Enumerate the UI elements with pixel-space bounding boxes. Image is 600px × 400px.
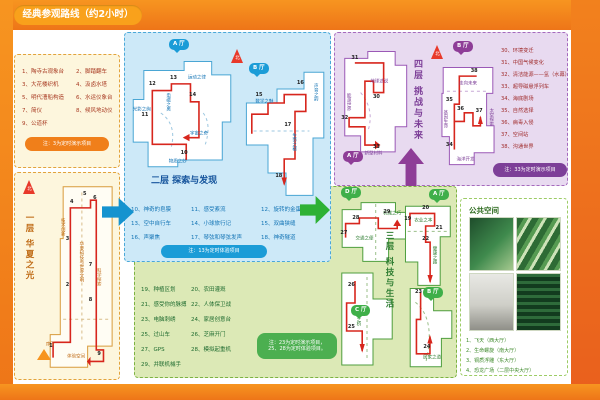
north-compass-floor2: 北	[231, 49, 244, 64]
legend-item: 15、双曲狭缝	[261, 219, 341, 227]
north-compass-floor4: 北	[431, 45, 444, 60]
zone-label: 物质之妙	[169, 161, 187, 166]
route-point-10: 10	[181, 150, 188, 156]
floor4-note-text: 注：33为定时演示项目	[493, 167, 567, 174]
floor3-note: 注：23为定时演示项目， 25、28为定时体验项目。	[257, 333, 337, 359]
legend-item: 9、公道杯	[22, 119, 74, 127]
legend-item: 34、海底剧场	[501, 95, 569, 102]
zone-label: 海洋开发	[457, 159, 475, 164]
legend-item: 33、超导磁悬浮列车	[501, 83, 569, 90]
legend-item: 13、空中自行车	[131, 219, 187, 227]
floor3-legend: 19、种植区划20、农田灌溉21、感受你的脉搏22、人体保卫战23、电脑刺绣24…	[141, 285, 261, 368]
zone-label: 基因生命	[442, 110, 447, 128]
legend-item: 1、飞天（西大厅）	[466, 337, 509, 344]
legend-item: 10、神奇的皂膜	[131, 205, 187, 213]
zone-label: 电磁之奥	[165, 93, 170, 111]
frame-bottom	[0, 384, 600, 400]
hall-tag-d: D 厅	[341, 187, 361, 198]
zone-label: 走向未来	[459, 82, 477, 87]
floor2-title: 二层 探索与发现	[151, 173, 217, 186]
hall-tag-b: B 厅	[249, 63, 269, 74]
route-point-20: 20	[422, 205, 429, 211]
public-space-photos	[469, 217, 561, 331]
legend-item: 27、GPS	[141, 345, 189, 353]
compass-label: 北	[231, 55, 244, 61]
route-point-17: 17	[284, 122, 291, 128]
hall-tag-a: A 厅	[169, 39, 189, 50]
legend-item: 29、并联机械手	[141, 360, 189, 368]
route-point-2: 2	[66, 282, 69, 288]
route-point-27: 27	[340, 230, 347, 236]
route-point-24: 24	[423, 344, 430, 350]
legend-item: 35、自然选择	[501, 107, 569, 114]
route-point-23: 23	[415, 289, 422, 295]
zone-label: 健康之路	[431, 246, 436, 264]
route-point-28: 28	[352, 215, 359, 221]
photo-flying-apsaras	[469, 217, 514, 271]
route-point-5: 5	[83, 191, 86, 197]
zone-label: 华夏科技与世界文明	[78, 241, 83, 282]
route-point-15: 15	[256, 92, 263, 98]
legend-item: 20、农田灌溉	[191, 285, 261, 293]
floor4-map-hall-b: 走向未来基因生命太空探索海洋开发3835363734	[437, 61, 499, 169]
floor4-panel: 能源世界地球述说新型材料31303233 走向未来基因生命太空探索海洋开发383…	[334, 32, 568, 186]
frame-left	[0, 0, 13, 400]
legend-item: 4、恐龙广场（二层中央大厅）	[466, 367, 534, 374]
route-point-9: 9	[97, 351, 100, 357]
route-point-1: 1	[49, 343, 52, 349]
photo-bronze-relief	[516, 273, 561, 331]
route-point-32: 32	[341, 115, 348, 121]
public-space-captions: 1、飞天（西大厅）2、生命螺旋（南大厅）3、铜质浮雕（东大厅）4、恐龙广场（二层…	[466, 337, 566, 374]
page-title: 经典参观路线（约2小时）	[14, 5, 142, 25]
route-point-38: 38	[471, 68, 478, 74]
floor2-map-hall-a: 光影之绚电磁之奥运动之律宇宙之奇物质之妙1011121314	[129, 57, 235, 169]
hall-tag-b: B 厅	[453, 41, 473, 52]
public-space-panel: 公共空间 1、飞天（西大厅）2、生命螺旋（南大厅）3、铜质浮雕（东大厅）4、恐龙…	[460, 198, 568, 376]
floor1-map-panel: 北 一层 华夏之光 技术创新华夏科技与世界文明科学探索序厅体验空间1234567…	[14, 172, 120, 380]
zone-label: 居家之道	[423, 356, 441, 361]
zone-label: 太空探索	[488, 108, 493, 126]
zone-label: 技术创新	[59, 218, 64, 236]
route-point-3: 3	[66, 236, 69, 242]
legend-item: 31、中国气候变化	[501, 59, 569, 66]
floor3-note-line2: 25、28为定时体验项目。	[257, 346, 337, 353]
legend-item: 3、铜质浮雕（东大厅）	[466, 357, 519, 364]
floor2-map-hall-b: 数学之魅声音之韵生命之秘15161718	[241, 61, 331, 201]
route-point-26: 26	[348, 282, 355, 288]
route-point-33: 33	[373, 144, 380, 150]
floor2-note: 注：13为定时体验项目	[161, 245, 267, 258]
north-compass-floor1: 北	[23, 180, 36, 195]
zone-label: 宇宙之奇	[190, 133, 208, 138]
hall-tag-c: C 厅	[351, 305, 370, 316]
route-point-6: 6	[93, 195, 96, 201]
floor1-title: 一层 华夏之光	[23, 213, 35, 343]
route-point-25: 25	[348, 324, 355, 330]
legend-item: 2、生命螺旋（南大厅）	[466, 347, 519, 354]
route-point-19: 19	[404, 216, 411, 222]
legend-item: 37、空间站	[501, 131, 569, 138]
legend-item: 36、病毒入侵	[501, 119, 569, 126]
route-point-16: 16	[297, 80, 304, 86]
legend-item: 32、清洁能源——氢（水幕）	[501, 71, 569, 78]
floor3-map-hall-a: 农业之本健康之路19202122	[401, 199, 457, 289]
legend-item: 7、简仪	[22, 106, 74, 114]
floor4-note: 注：33为定时演示项目	[493, 163, 567, 177]
route-point-30: 30	[373, 94, 380, 100]
floor2-note-text: 注：13为定时体验项目	[161, 248, 267, 255]
route-point-35: 35	[446, 97, 453, 103]
route-point-13: 13	[170, 75, 177, 81]
floor1-note: 注：3为定时演示项目	[25, 137, 109, 151]
zone-label: 科学探索	[95, 268, 100, 286]
legend-item: 21、感受你的脉搏	[141, 300, 189, 308]
route-point-18: 18	[275, 173, 282, 179]
route-point-11: 11	[141, 112, 148, 118]
zone-label: 体验空间	[67, 355, 85, 360]
legend-item: 6、水运仪象台	[76, 93, 124, 101]
photo-life-spiral	[516, 217, 561, 271]
zone-label: 农业之本	[414, 220, 432, 225]
floor1-legend: 1、陶寺古观象台2、脚踏翻车3、大花楼织机4、汲卤水塔5、明代漕船构造6、水运仪…	[22, 67, 124, 127]
legend-item: 16、声聚焦	[131, 233, 187, 241]
legend-item: 3、大花楼织机	[22, 80, 74, 88]
zone-label: 新型材料	[365, 153, 383, 158]
legend-item: 30、环境变迁	[501, 47, 569, 54]
zone-label: 声音之韵	[312, 83, 317, 101]
legend-item: 22、人体保卫战	[191, 300, 261, 308]
floor1-note-text: 注：3为定时演示项目	[25, 141, 109, 148]
route-point-8: 8	[89, 297, 92, 303]
legend-item: 28、模拟起重机	[191, 345, 261, 353]
route-point-14: 14	[189, 92, 196, 98]
zone-label: 能源世界	[345, 93, 350, 111]
route-point-22: 22	[422, 236, 429, 242]
route-point-36: 36	[457, 106, 464, 112]
legend-item: 8、候风地动仪	[76, 106, 124, 114]
public-space-title: 公共空间	[469, 205, 499, 216]
floor4-map-hall-a: 能源世界地球述说新型材料31303233	[339, 47, 411, 161]
legend-item: 19、种植区划	[141, 285, 189, 293]
legend-item: 5、明代漕船构造	[22, 93, 74, 101]
legend-item: 14、小球旅行记	[191, 219, 257, 227]
route-point-34: 34	[446, 142, 453, 148]
legend-item: 38、沟通世界	[501, 143, 569, 150]
route-point-4: 4	[70, 199, 73, 205]
route-point-37: 37	[476, 108, 483, 114]
floor2-panel: 光影之绚电磁之奥运动之律宇宙之奇物质之妙1011121314 数学之魅声音之韵生…	[124, 32, 331, 262]
frame-right	[571, 0, 600, 400]
legend-item: 1、陶寺古观象台	[22, 67, 74, 75]
legend-item: 26、芝麻开门	[191, 330, 261, 338]
legend-item: 2、脚踏翻车	[76, 67, 124, 75]
hall-tag-b: B 厅	[423, 287, 443, 298]
hall-tag-a: A 厅	[429, 189, 449, 200]
legend-item: 18、神奇隧道	[261, 233, 341, 241]
route-point-7: 7	[89, 262, 92, 268]
hall-tag-a: A 厅	[343, 151, 363, 162]
route-map-poster: 经典参观路线（约2小时） 交通之便机械之巧272829 农业之本健康之路1920…	[0, 0, 600, 400]
legend-item: 17、琴弦和琴弦发声	[191, 233, 257, 241]
legend-item: 25、过山车	[141, 330, 189, 338]
route-point-21: 21	[436, 225, 443, 231]
floor1-legend-panel: 1、陶寺古观象台2、脚踏翻车3、大花楼织机4、汲卤水塔5、明代漕船构造6、水运仪…	[14, 54, 120, 168]
zone-label: 地球述说	[370, 81, 388, 86]
route-point-29: 29	[383, 209, 390, 215]
photo-dinosaur-plaza	[469, 273, 514, 331]
legend-item: 11、感受紊流	[191, 205, 257, 213]
route-point-31: 31	[351, 55, 358, 61]
zone-label: 生命之秘	[291, 133, 296, 151]
compass-label: 北	[23, 186, 36, 192]
zone-label: 数学之魅	[255, 101, 273, 106]
legend-item: 4、汲卤水塔	[76, 80, 124, 88]
floor4-legend: 30、环境变迁31、中国气候变化32、清洁能源——氢（水幕）33、超导磁悬浮列车…	[501, 47, 569, 150]
legend-item: 23、电脑刺绣	[141, 315, 189, 323]
compass-label: 北	[431, 51, 444, 57]
floor3-title: 三层 科技与生活	[383, 231, 395, 349]
zone-label: 运动之律	[188, 77, 206, 82]
zone-label: 交通之便	[356, 238, 374, 243]
route-point-12: 12	[149, 81, 156, 87]
legend-item: 24、家居创意台	[191, 315, 261, 323]
